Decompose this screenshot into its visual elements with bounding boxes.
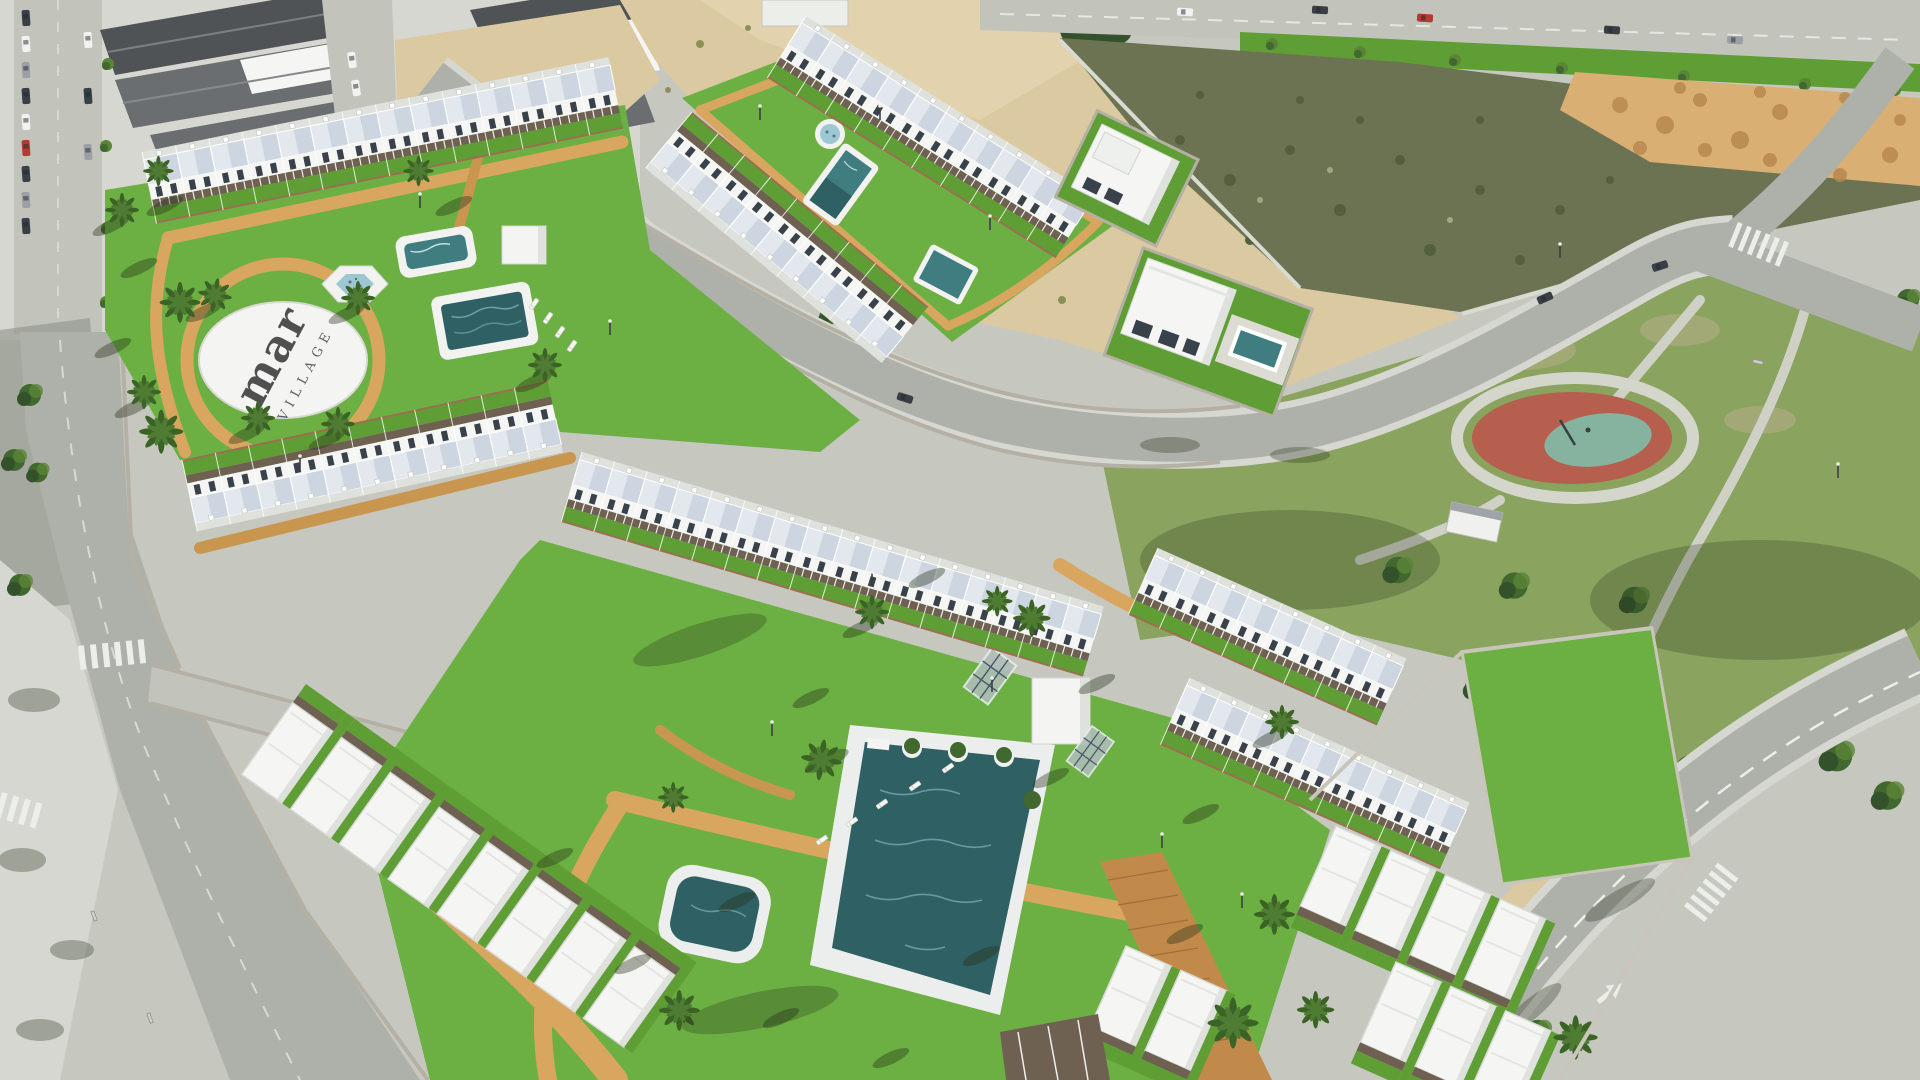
aerial-render-page: mar VILLAGE [0,0,1920,1080]
aerial-development-render: mar VILLAGE [0,0,1920,1080]
playground [1457,378,1693,498]
white-cube-upper [502,226,546,264]
northeast-yard-lawn [1462,628,1692,884]
